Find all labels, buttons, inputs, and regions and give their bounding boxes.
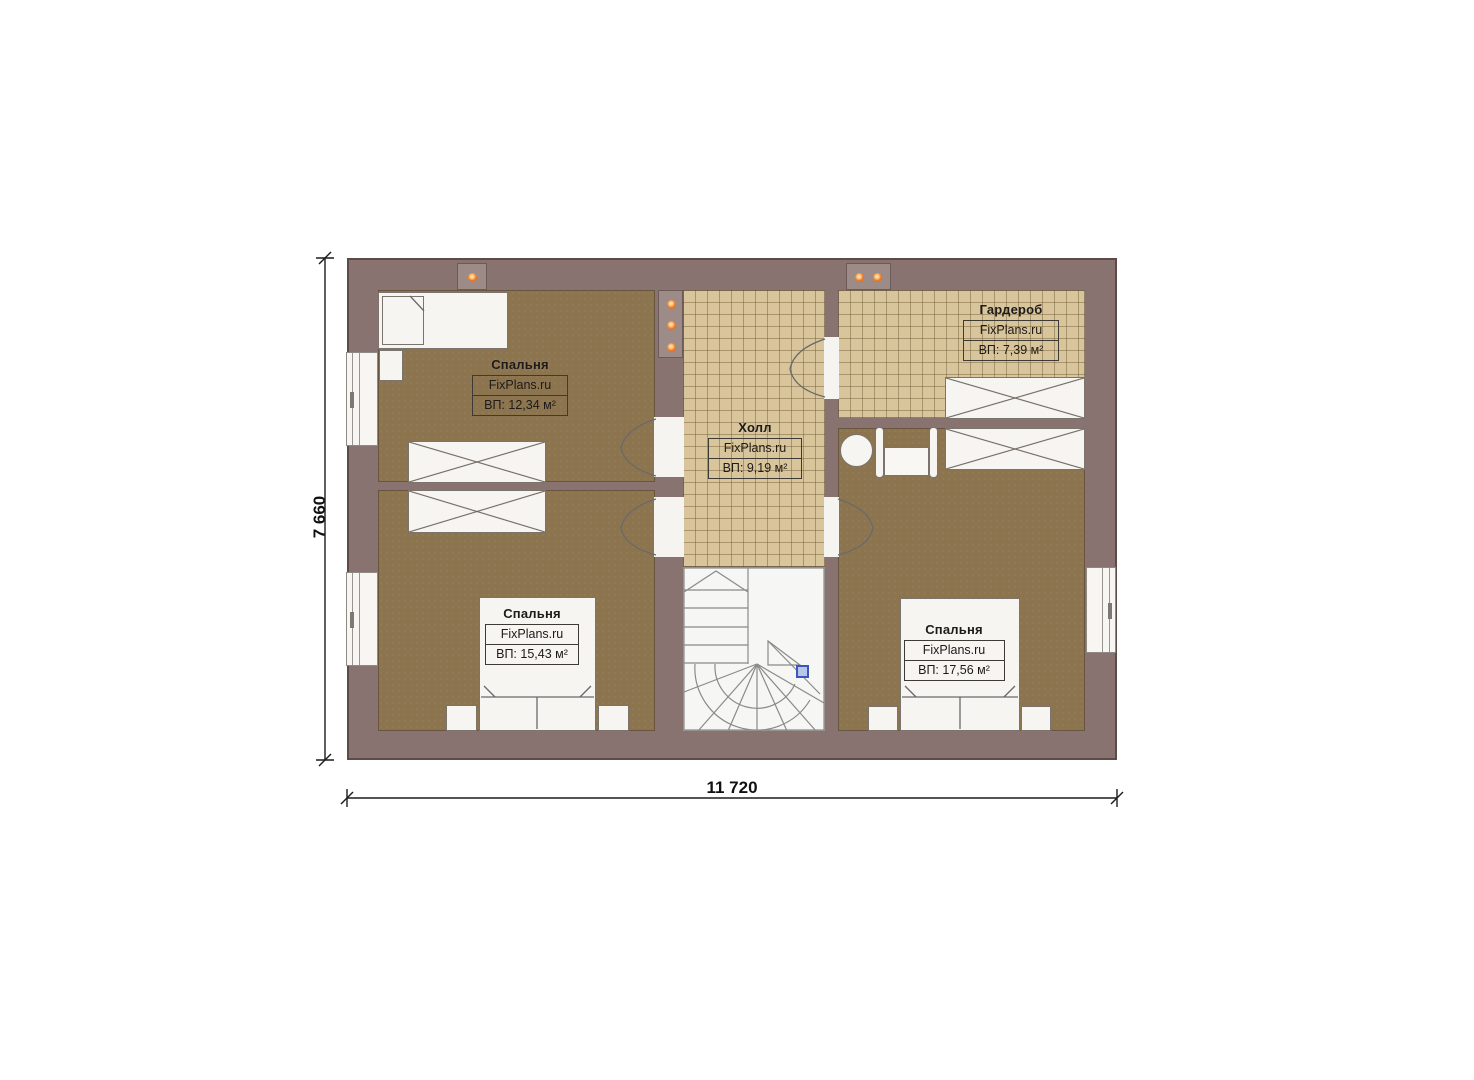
door-opening-bedroom-tl — [654, 417, 684, 477]
room-area: ВП: 12,34 м² — [473, 395, 567, 415]
wardrobe-cabinet — [408, 441, 546, 483]
watermark: FixPlans.ru — [486, 625, 578, 644]
chimney-block-top-right — [846, 263, 891, 290]
room-label-bedroom-bl: Спальня FixPlans.ru ВП: 15,43 м² — [462, 606, 602, 665]
chimney-block-hall — [658, 290, 683, 358]
nightstand — [446, 705, 477, 731]
room-area: ВП: 17,56 м² — [905, 660, 1004, 680]
window-left-top — [346, 352, 378, 446]
room-label-wardrobe: Гардероб FixPlans.ru ВП: 7,39 м² — [941, 302, 1081, 361]
wardrobe-cabinet — [945, 428, 1085, 470]
floor-stairwell — [683, 567, 825, 731]
room-area: ВП: 9,19 м² — [709, 458, 801, 478]
room-label-bedroom-br: Спальня FixPlans.ru ВП: 17,56 м² — [884, 622, 1024, 681]
door-opening-bedroom-br — [824, 497, 839, 557]
room-area: ВП: 7,39 м² — [964, 340, 1058, 360]
door-opening-wardrobe — [824, 337, 839, 399]
vent-light-icon — [873, 273, 882, 282]
room-name: Спальня — [491, 357, 549, 372]
door-opening-bedroom-bl — [654, 497, 684, 557]
room-area: ВП: 15,43 м² — [486, 644, 578, 664]
wardrobe-cabinet — [945, 377, 1085, 419]
room-label-bedroom-tl: Спальня FixPlans.ru ВП: 12,34 м² — [450, 357, 590, 416]
dimension-width-label: 11 720 — [662, 778, 802, 798]
vent-light-icon — [667, 343, 676, 352]
vent-light-icon — [667, 300, 676, 309]
watermark: FixPlans.ru — [905, 641, 1004, 660]
round-table — [840, 434, 873, 467]
armchair — [875, 427, 938, 478]
wardrobe-cabinet — [408, 490, 546, 533]
vent-light-icon — [468, 273, 477, 282]
nightstand — [868, 706, 898, 731]
vent-light-icon — [855, 273, 864, 282]
watermark: FixPlans.ru — [473, 376, 567, 395]
chimney-block-top-left — [457, 263, 487, 290]
watermark: FixPlans.ru — [709, 439, 801, 458]
nightstand — [379, 350, 403, 381]
bed-pillow — [382, 296, 424, 345]
watermark: FixPlans.ru — [964, 321, 1058, 340]
window-right — [1086, 567, 1116, 653]
vent-light-icon — [667, 321, 676, 330]
room-name: Гардероб — [979, 302, 1042, 317]
nightstand — [1021, 706, 1051, 731]
window-left-bottom — [346, 572, 378, 666]
room-label-hall: Холл FixPlans.ru ВП: 9,19 м² — [685, 420, 825, 479]
room-name: Спальня — [925, 622, 983, 637]
nightstand — [598, 705, 629, 731]
dimension-height-label: 7 660 — [310, 477, 328, 557]
room-name: Спальня — [503, 606, 561, 621]
floor-plan-page: Спальня FixPlans.ru ВП: 12,34 м² Холл Fi… — [0, 0, 1474, 1080]
room-name: Холл — [738, 420, 771, 435]
